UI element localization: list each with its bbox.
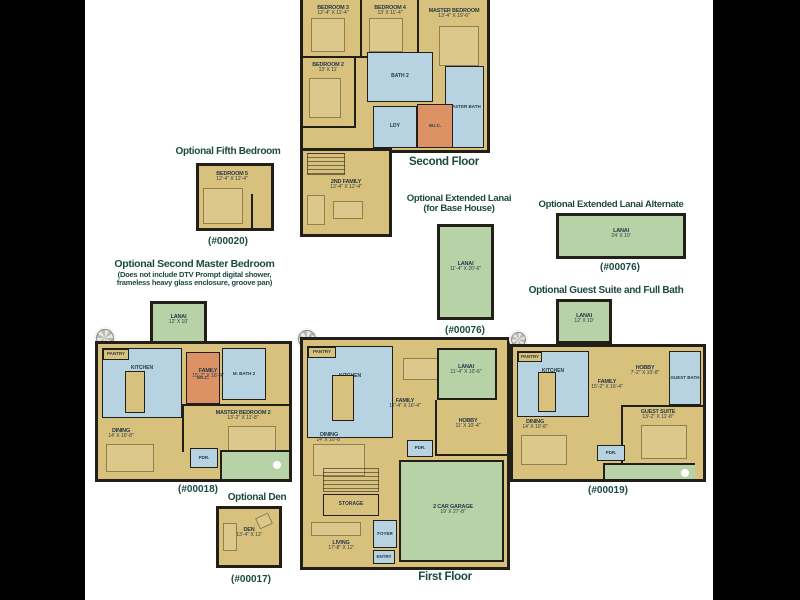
guest-suite-plan-number: (#00019) <box>558 485 658 496</box>
room-label-dining: DINING 14' X 10'-8" <box>307 432 351 444</box>
room-label-family: FAMILY 15'-2" X 16'-4" <box>178 368 238 380</box>
kitchen-island <box>332 375 354 421</box>
room-label-bedroom5: BEDROOM 5 12'-4" X 12'-4" <box>203 171 261 183</box>
dining-table-furniture <box>521 435 567 465</box>
powder-area: PDR. <box>190 448 218 468</box>
dining-table-furniture <box>106 444 154 472</box>
floorplan-sheet: BEDROOM 3 12'-4" X 11'-4" BEDROOM 4 13' … <box>0 0 800 600</box>
den-plan-number: (#00017) <box>204 574 298 585</box>
room-label-dining: DINING 14' X 10'-8" <box>98 428 144 440</box>
bath2-area: BATH 2 <box>367 52 433 102</box>
den-title: Optional Den <box>210 492 304 503</box>
guest-bath-area: GUEST BATH <box>669 351 701 405</box>
room-label-bath2: BATH 2 <box>368 53 432 101</box>
room-label-powder: PDR. <box>598 446 624 460</box>
wall <box>303 126 356 128</box>
kitchen-island <box>538 372 556 412</box>
sofa-furniture <box>311 522 361 536</box>
extended-lanai-alt-title: Optional Extended Lanai Alternate <box>532 200 690 210</box>
wall <box>417 0 419 56</box>
room-label-dining: DINING 14' X 10'-8" <box>513 419 557 431</box>
fifth-bedroom-plan: BEDROOM 5 12'-4" X 12'-4" <box>196 163 274 231</box>
table-dot <box>273 461 281 469</box>
foyer-area: FOYER <box>373 520 397 548</box>
bed-furniture <box>311 18 345 52</box>
wall <box>182 404 289 406</box>
room-label-lanai: LANAI 12' X 10' <box>561 313 607 325</box>
entry-area: ENTRY <box>373 550 395 564</box>
table-furniture <box>333 201 363 219</box>
desk-furniture <box>223 523 237 551</box>
wall <box>354 56 356 128</box>
room-label-bedroom4: BEDROOM 4 13' X 11'-4" <box>363 5 417 17</box>
second-floor-plan-lower: 2ND FAMILY 13'-4" X 12'-4" <box>300 148 392 237</box>
pantry-area: PANTRY <box>518 352 542 362</box>
room-label-lanai: LANAI 11'-4" X 10'-6" <box>443 364 489 376</box>
room-label-entry: ENTRY <box>374 551 394 563</box>
bed-furniture <box>203 188 243 224</box>
guest-suite-plan: KITCHEN PANTRY FAMILY 15'-2" X 16'-4" HO… <box>510 344 706 482</box>
bed-furniture <box>439 26 479 66</box>
room-label-bedroom3: BEDROOM 3 12'-4" X 11'-4" <box>305 5 361 17</box>
room-label-second-family: 2ND FAMILY 13'-4" X 12'-4" <box>311 179 381 191</box>
rear-porch-area <box>603 463 695 479</box>
sofa-furniture <box>307 195 325 225</box>
room-label-hobby: HOBBY 11' X 10'-4" <box>439 418 497 430</box>
room-label-living: LIVING 17'-8" X 12' <box>315 540 367 552</box>
bed-furniture <box>641 425 687 459</box>
room-label-bedroom2: BEDROOM 2 13' X 11' <box>303 62 353 74</box>
room-label-pantry: PANTRY <box>519 353 541 361</box>
staircase <box>323 468 379 492</box>
guest-suite-title: Optional Guest Suite and Full Bath <box>502 285 710 296</box>
kitchen-area: KITCHEN <box>307 346 393 438</box>
room-label-wic: W.I.C. <box>418 105 452 147</box>
extended-lanai-plan: LANAI 11'-4" X 20'-6" <box>437 224 494 320</box>
garage-area: 2 CAR GARAGE 19' X 27'-8" <box>399 460 504 562</box>
extended-lanai-title: Optional Extended Lanai (for Base House) <box>398 194 520 215</box>
extended-lanai-alt-plan-number: (#00076) <box>560 262 680 273</box>
rear-porch-area <box>220 450 289 479</box>
room-label-powder: PDR. <box>408 441 432 456</box>
second-floor-caption: Second Floor <box>394 156 494 168</box>
powder-area: PDR. <box>407 440 433 457</box>
room-label-lanai: LANAI 24' X 10' <box>589 228 653 240</box>
room-label-laundry: LDY <box>374 107 416 147</box>
room-label-powder: PDR. <box>191 449 217 467</box>
room-label-pantry: PANTRY <box>104 350 128 359</box>
storage-area: STORAGE <box>323 494 379 516</box>
room-label-family: FAMILY 15'-2" X 16'-4" <box>577 379 637 391</box>
fifth-bedroom-plan-number: (#00020) <box>178 236 278 247</box>
room-label-master-bedroom: MASTER BEDROOM 13'-4" X 19'-6" <box>425 8 483 20</box>
room-label-guest-bath: GUEST BATH <box>670 352 700 404</box>
room-label-storage: STORAGE <box>324 495 378 515</box>
table-dot <box>681 469 689 477</box>
room-label-pantry: PANTRY <box>309 348 335 357</box>
second-master-title: Optional Second Master Bedroom (Does not… <box>92 259 297 287</box>
room-label-garage: 2 CAR GARAGE 19' X 27'-8" <box>423 504 483 516</box>
room-label-guest-suite: GUEST SUITE 13'-2" X 11'-8" <box>627 409 689 421</box>
bed-furniture <box>369 18 403 52</box>
first-floor-plan: KITCHEN PANTRY FAMILY 17'-4" X 16'-4" LA… <box>300 337 510 570</box>
room-label-family: FAMILY 17'-4" X 16'-4" <box>373 398 437 410</box>
room-label-lanai: LANAI 11'-4" X 20'-6" <box>442 261 489 273</box>
staircase <box>307 153 345 175</box>
den-plan: DEN 13'-4" X 12' <box>216 506 282 568</box>
first-floor-caption: First Floor <box>390 571 500 583</box>
wall <box>621 405 703 407</box>
pantry-area: PANTRY <box>103 349 129 360</box>
wall <box>435 400 437 456</box>
pantry-area: PANTRY <box>308 347 336 358</box>
wall <box>435 454 507 456</box>
wic-area: W.I.C. <box>417 104 453 148</box>
powder-area: PDR. <box>597 445 625 461</box>
lanai-area: LANAI 11'-4" X 10'-6" <box>437 348 497 400</box>
extended-lanai-alt-plan: LANAI 24' X 10' <box>556 213 686 259</box>
room-label-hobby: HOBBY 7'-2" X 10'-8" <box>619 365 671 377</box>
bed-furniture <box>309 78 341 118</box>
wall <box>251 194 253 228</box>
second-master-plan: KITCHEN PANTRY W.I.C. M. BATH 2 FAMILY 1… <box>95 341 292 482</box>
extended-lanai-plan-number: (#00076) <box>405 325 525 336</box>
kitchen-island <box>125 371 145 413</box>
fifth-bedroom-title: Optional Fifth Bedroom <box>168 146 288 157</box>
room-label-foyer: FOYER <box>374 521 396 547</box>
second-floor-plan: BEDROOM 3 12'-4" X 11'-4" BEDROOM 4 13' … <box>300 0 490 153</box>
room-label-master-bedroom2: MASTER BEDROOM 2 13'-2" X 11'-8" <box>210 410 276 422</box>
laundry-area: LDY <box>373 106 417 148</box>
wall <box>182 404 184 452</box>
